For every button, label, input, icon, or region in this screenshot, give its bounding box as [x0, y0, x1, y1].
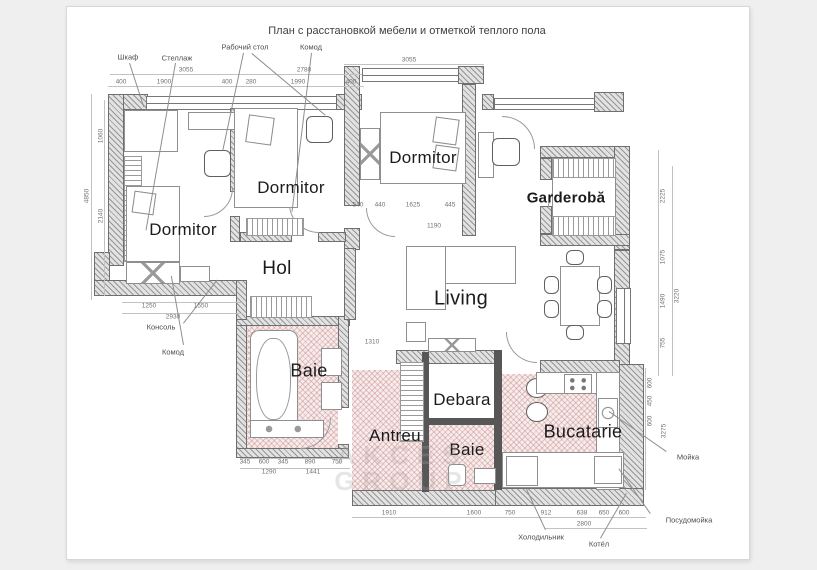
- dimension-label: 1600: [467, 510, 481, 517]
- dimension-label: 1290: [262, 469, 276, 476]
- dimension-label: 345: [240, 459, 251, 466]
- dimension-label: 1550: [194, 303, 208, 310]
- dimension-label: 600: [647, 416, 654, 427]
- stove-icon: [564, 374, 592, 394]
- dimension-label: 1490: [660, 294, 667, 308]
- dimension-label: 540: [353, 202, 364, 209]
- wall-segment: [236, 280, 247, 320]
- window: [362, 68, 460, 82]
- room-label-dormitor3: Dormitor: [389, 148, 457, 168]
- dimension-label: 1310: [365, 339, 379, 346]
- radiator-icon: [246, 218, 304, 236]
- pillow-icon: [245, 114, 275, 145]
- closet-rail-icon: [552, 158, 616, 178]
- room-label-dormitor1: Dormitor: [149, 220, 217, 240]
- dimension-label: 912: [541, 510, 552, 517]
- dimension-label: 755: [660, 338, 667, 349]
- dining-table-icon: [560, 266, 600, 326]
- dimension-label: 445: [445, 202, 456, 209]
- dimension-label: 4850: [84, 189, 91, 203]
- wardrobe-icon: [124, 110, 178, 152]
- dining-chair-icon: [566, 250, 584, 265]
- room-label-bucatarie: Bucatarie: [544, 422, 623, 443]
- office-chair-icon: [204, 150, 231, 177]
- dimension-label: 1075: [660, 250, 667, 264]
- room-label-living: Living: [434, 288, 488, 311]
- dimension-line: [122, 313, 242, 314]
- room-label-dormitor2: Dormitor: [257, 178, 325, 198]
- dimension-label: 400: [346, 79, 357, 86]
- office-chair-icon: [306, 116, 333, 143]
- dimension-line: [352, 517, 646, 518]
- wall-segment: [344, 228, 360, 250]
- wall-segment: [494, 488, 644, 506]
- window: [616, 288, 631, 344]
- partition-wall: [429, 418, 495, 425]
- dimension-label: 3055: [402, 57, 416, 64]
- dimension-label: 2780: [297, 67, 311, 74]
- fridge-icon: [506, 456, 538, 486]
- washing-machine-icon: [321, 382, 342, 410]
- dimension-line: [344, 64, 484, 65]
- dining-chair-icon: [566, 325, 584, 340]
- annotation-label: Посудомойка: [666, 516, 713, 525]
- room-label-debara: Debara: [433, 390, 491, 410]
- dimension-line: [91, 94, 92, 300]
- closet-rail-icon: [552, 216, 616, 236]
- dimension-label: 2930: [166, 314, 180, 321]
- room-label-hol: Hol: [262, 258, 291, 280]
- dimension-label: 1625: [406, 202, 420, 209]
- dresser-icon: [180, 266, 210, 282]
- dimension-label: 750: [332, 459, 343, 466]
- dimension-label: 600: [259, 459, 270, 466]
- boiler-icon: [594, 456, 622, 484]
- wall-segment: [344, 66, 360, 206]
- radiator-icon: [250, 296, 312, 318]
- wall-segment: [594, 92, 624, 112]
- dimension-label: 2140: [98, 209, 105, 223]
- dining-chair-icon: [597, 300, 612, 318]
- room-label-garderoba: Garderobă: [527, 190, 606, 207]
- wall-segment: [236, 448, 349, 458]
- wall-segment: [458, 66, 484, 84]
- dimension-line: [672, 166, 673, 376]
- dimension-label: 2800: [577, 521, 591, 528]
- wall-segment: [344, 248, 356, 320]
- dimension-line: [122, 302, 242, 303]
- watermark-line2: GROUP: [334, 468, 469, 494]
- bathtub-inner: [256, 338, 291, 420]
- watermark-line1: AKCES: [334, 442, 469, 468]
- dining-chair-icon: [544, 300, 559, 318]
- wall-segment: [482, 94, 494, 110]
- sink-icon: [474, 468, 496, 484]
- dimension-label: 280: [246, 79, 257, 86]
- dimension-label: 1441: [306, 469, 320, 476]
- bar-chair-icon: [526, 402, 548, 422]
- room-label-baie: Baie: [290, 361, 327, 382]
- dining-chair-icon: [597, 276, 612, 294]
- dimension-label: 400: [222, 79, 233, 86]
- dimension-label: 1250: [142, 303, 156, 310]
- vanity-icon: [250, 420, 324, 438]
- dimension-line: [110, 74, 362, 75]
- wall-segment: [540, 158, 552, 180]
- wall-segment: [236, 316, 247, 458]
- annotation-label: Стеллаж: [162, 54, 193, 63]
- annotation-label: Комод: [162, 348, 184, 357]
- office-chair-icon: [492, 138, 520, 166]
- dimension-label: 1190: [427, 223, 441, 230]
- wardrobe-icon: [360, 128, 380, 180]
- annotation-label: Комод: [300, 43, 322, 52]
- floor-plan-page: План с расстановкой мебели и отметкой те…: [0, 0, 817, 570]
- plan-title: План с расстановкой мебели и отметкой те…: [268, 25, 545, 37]
- annotation-label: Консоль: [147, 323, 176, 332]
- pillow-icon: [432, 116, 459, 145]
- dimension-label: 750: [505, 510, 516, 517]
- dimension-label: 1060: [98, 129, 105, 143]
- dimension-label: 650: [599, 510, 610, 517]
- dimension-label: 600: [647, 378, 654, 389]
- dimension-label: 638: [577, 510, 588, 517]
- dimension-label: 2225: [660, 189, 667, 203]
- annotation-label: Котёл: [589, 540, 609, 549]
- window: [494, 98, 596, 110]
- annotation-label: Рабочий стол: [221, 43, 268, 52]
- wall-segment: [318, 232, 346, 242]
- tv-icon: [428, 338, 476, 352]
- dimension-label: 450: [647, 396, 654, 407]
- wall-segment: [540, 206, 552, 234]
- dimension-label: 890: [305, 459, 316, 466]
- dimension-line: [545, 528, 647, 529]
- dimension-label: 1990: [291, 79, 305, 86]
- dimension-label: 345: [278, 459, 289, 466]
- wall-segment: [230, 216, 240, 242]
- dimension-label: 600: [619, 510, 630, 517]
- dimension-label: 3275: [661, 424, 668, 438]
- dimension-label: 400: [116, 79, 127, 86]
- watermark: AKCES GROUP: [334, 442, 469, 494]
- annotation-label: Холодильник: [518, 533, 564, 542]
- dimension-label: 3055: [179, 67, 193, 74]
- dimension-label: 1910: [382, 510, 396, 517]
- annotation-label: Шкаф: [118, 53, 139, 62]
- dimension-label: 3220: [674, 289, 681, 303]
- dimension-label: 440: [375, 202, 386, 209]
- wall-segment: [108, 94, 124, 266]
- dining-chair-icon: [544, 276, 559, 294]
- coffee-table-icon: [406, 322, 426, 342]
- annotation-label: Мойка: [677, 453, 699, 462]
- dimension-label: 1900: [157, 79, 171, 86]
